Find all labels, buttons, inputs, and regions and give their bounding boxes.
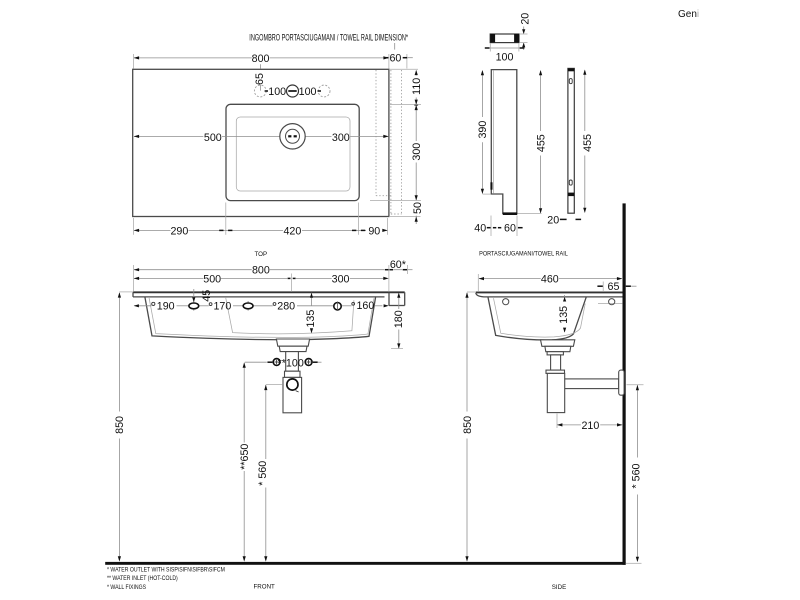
- svg-text:** WATER INLET (HOT-COLD): ** WATER INLET (HOT-COLD): [107, 576, 178, 582]
- svg-text:135: 135: [558, 306, 570, 324]
- svg-text:* WATER OUTLET WITH SISP\SIFN: * WATER OUTLET WITH SISP\SIFN\SIFBR\SIFC…: [107, 567, 225, 573]
- svg-text:INGOMBRO PORTASCIUGAMANI / TOW: INGOMBRO PORTASCIUGAMANI / TOWEL RAIL DI…: [249, 32, 408, 43]
- svg-text:850: 850: [114, 416, 126, 434]
- svg-text:460: 460: [541, 274, 559, 286]
- svg-text:90: 90: [368, 225, 380, 237]
- svg-text:60: 60: [389, 52, 401, 64]
- svg-text:20: 20: [519, 13, 531, 25]
- svg-text:45: 45: [201, 290, 213, 302]
- svg-text:135: 135: [305, 310, 317, 328]
- svg-text:**100: **100: [278, 357, 304, 369]
- svg-text:280: 280: [277, 301, 295, 313]
- svg-text:65: 65: [608, 281, 620, 293]
- svg-text:100: 100: [268, 86, 286, 98]
- svg-text:FRONT: FRONT: [254, 584, 276, 591]
- svg-text:455: 455: [535, 134, 547, 152]
- svg-text:40: 40: [474, 223, 486, 235]
- svg-text:180: 180: [393, 310, 405, 328]
- svg-text:850: 850: [462, 416, 474, 434]
- svg-text:60: 60: [504, 223, 516, 235]
- svg-text:300: 300: [332, 273, 350, 285]
- svg-text:SIDE: SIDE: [552, 584, 566, 591]
- svg-text:190: 190: [157, 301, 175, 313]
- svg-text:160: 160: [356, 300, 374, 312]
- svg-text:800: 800: [252, 53, 270, 65]
- svg-text:20: 20: [547, 215, 559, 227]
- svg-text:* 560: * 560: [257, 461, 269, 486]
- svg-text:110: 110: [411, 78, 423, 95]
- svg-text:65: 65: [254, 73, 266, 85]
- svg-text:500: 500: [204, 132, 222, 144]
- svg-text:800: 800: [252, 265, 270, 277]
- svg-text:390: 390: [477, 121, 489, 139]
- svg-text:TOP: TOP: [254, 251, 267, 258]
- svg-text:* WALL FIXINGS: * WALL FIXINGS: [107, 585, 146, 591]
- svg-text:170: 170: [213, 301, 231, 313]
- svg-text:Geni: Geni: [678, 9, 699, 20]
- svg-text:290: 290: [170, 225, 188, 237]
- svg-text:420: 420: [283, 225, 301, 237]
- svg-text:300: 300: [411, 143, 423, 161]
- svg-text:50: 50: [412, 202, 424, 214]
- svg-text:PORTASCIUGAMANI/TOWEL RAIL: PORTASCIUGAMANI/TOWEL RAIL: [479, 251, 568, 257]
- svg-text:**650: **650: [239, 444, 251, 470]
- svg-text:500: 500: [203, 273, 221, 285]
- svg-text:* 560: * 560: [631, 463, 643, 488]
- svg-text:300: 300: [332, 132, 350, 144]
- svg-text:455: 455: [582, 134, 594, 152]
- svg-text:100: 100: [496, 51, 514, 63]
- svg-text:210: 210: [581, 420, 599, 432]
- svg-text:60*: 60*: [390, 259, 406, 271]
- svg-text:100: 100: [299, 86, 317, 98]
